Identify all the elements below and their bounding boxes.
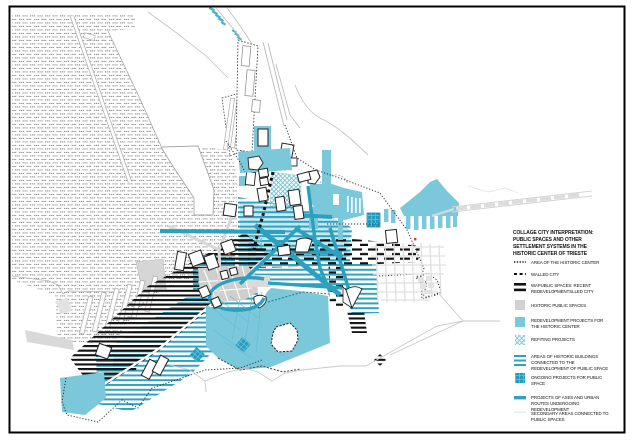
svg-text:COLLAGE CITY INTERPRETATION:: COLLAGE CITY INTERPRETATION: <box>513 230 594 236</box>
svg-text:SECONDARY AREAS CONNECTED TO: SECONDARY AREAS CONNECTED TO <box>531 411 609 416</box>
svg-text:ROUTES UNDERGOING: ROUTES UNDERGOING <box>531 401 580 406</box>
svg-text:AREA OF THE HISTORIC CENTER: AREA OF THE HISTORIC CENTER <box>531 260 599 265</box>
svg-text:PROJECTS OF AXES AND URBAN: PROJECTS OF AXES AND URBAN <box>531 395 599 400</box>
svg-text:WAPUBLIC SPACES: RECENT: WAPUBLIC SPACES: RECENT <box>531 283 592 288</box>
svg-text:REDEVELOPMENTSLLED CITY: REDEVELOPMENTSLLED CITY <box>531 289 594 294</box>
svg-text:THE HISTORIC CENTER: THE HISTORIC CENTER <box>531 324 580 329</box>
svg-text:REFITING PROJECTS: REFITING PROJECTS <box>531 337 575 342</box>
svg-text:HISTORIC CENTER OF TRIESTE: HISTORIC CENTER OF TRIESTE <box>513 251 588 257</box>
svg-text:WALLED CITY: WALLED CITY <box>531 272 559 277</box>
svg-text:PUBLIC SPACES AND OTHER: PUBLIC SPACES AND OTHER <box>513 237 582 243</box>
svg-text:PUBLIC SPACES: PUBLIC SPACES <box>531 417 565 422</box>
svg-text:REDEVELOPMENT OF PUBLIC SPACE: REDEVELOPMENT OF PUBLIC SPACE <box>531 366 608 371</box>
svg-text:CONNECTED TO THE: CONNECTED TO THE <box>531 360 575 365</box>
svg-text:SPACE: SPACE <box>531 381 545 386</box>
svg-text:ONGOING PROJECTS FOR PUBLIC: ONGOING PROJECTS FOR PUBLIC <box>531 375 602 380</box>
svg-text:REDEVELOPMENT PROJECTS FOR: REDEVELOPMENT PROJECTS FOR <box>531 318 603 323</box>
svg-text:HISTORIC PUBLIC SPACES: HISTORIC PUBLIC SPACES <box>531 303 586 308</box>
svg-text:SETTLEMENT SYSTEMS IN THE: SETTLEMENT SYSTEMS IN THE <box>513 244 588 250</box>
svg-text:AREAS OF HISTORIC BUILDINGS: AREAS OF HISTORIC BUILDINGS <box>531 354 598 359</box>
